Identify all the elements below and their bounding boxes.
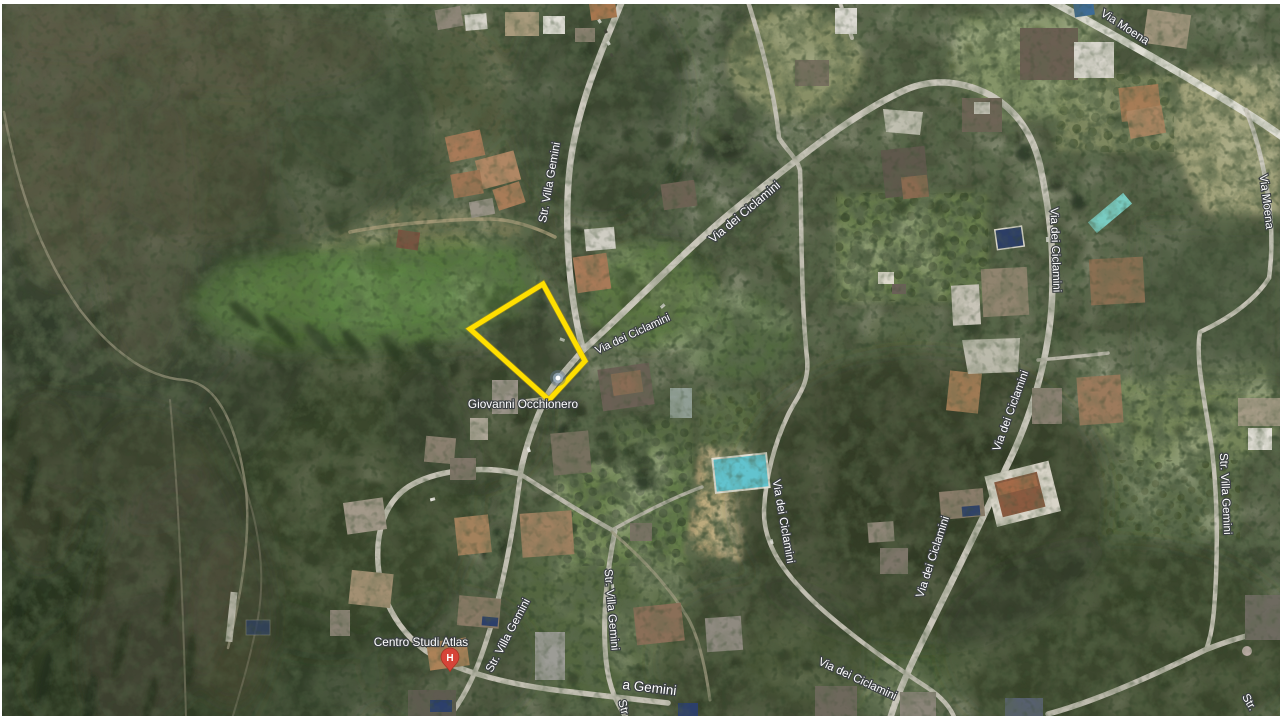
svg-text:Centro Studi Atlas: Centro Studi Atlas (374, 635, 469, 649)
svg-text:H: H (446, 653, 453, 664)
svg-text:Giovanni Occhionero: Giovanni Occhionero (468, 397, 579, 411)
